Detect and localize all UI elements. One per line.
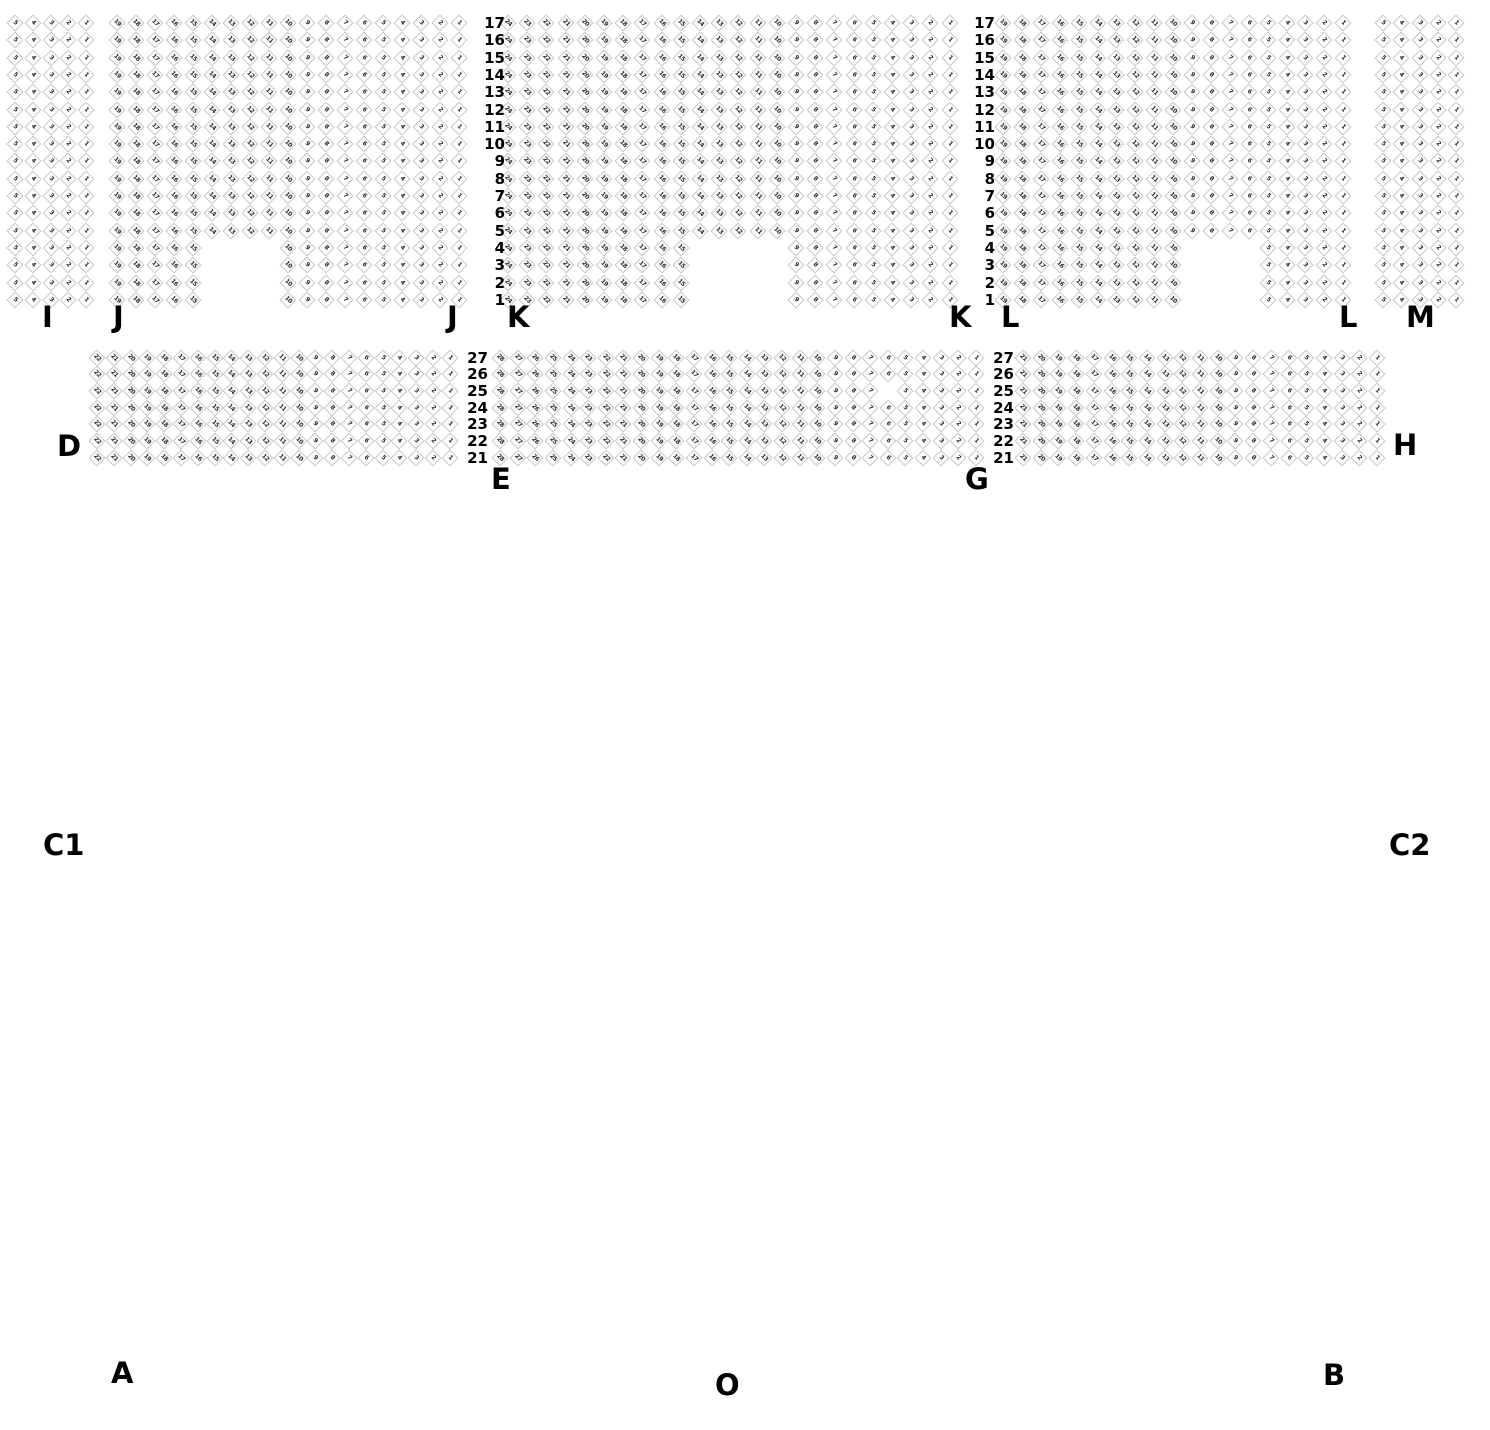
seat[interactable]: 19 bbox=[650, 366, 667, 383]
seat[interactable]: 2 bbox=[432, 136, 449, 153]
seat[interactable]: 19 bbox=[596, 49, 613, 66]
seat[interactable]: 1 bbox=[941, 136, 958, 153]
seat[interactable]: 14 bbox=[1089, 205, 1106, 222]
seat[interactable]: 14 bbox=[1089, 32, 1106, 49]
seat[interactable]: 7 bbox=[337, 222, 354, 239]
seat[interactable]: 10 bbox=[280, 49, 297, 66]
seat[interactable]: 7 bbox=[341, 433, 358, 450]
seat[interactable]: 2 bbox=[1429, 101, 1446, 118]
seat[interactable]: 18 bbox=[1013, 257, 1030, 274]
seat[interactable]: 15 bbox=[721, 449, 738, 466]
seat[interactable]: 20 bbox=[576, 257, 593, 274]
seat[interactable]: 17 bbox=[1085, 416, 1102, 433]
seat[interactable]: 17 bbox=[1032, 84, 1049, 101]
seat[interactable]: 20 bbox=[576, 153, 593, 170]
seat[interactable]: 11 bbox=[749, 15, 766, 32]
seat[interactable]: 17 bbox=[634, 118, 651, 135]
seat[interactable]: 16 bbox=[1051, 32, 1068, 49]
seat[interactable]: 5 bbox=[1375, 239, 1392, 256]
seat[interactable]: 1 bbox=[451, 49, 468, 66]
seat[interactable]: 19 bbox=[1050, 449, 1067, 466]
seat[interactable]: 7 bbox=[1221, 84, 1238, 101]
seat[interactable]: 2 bbox=[60, 257, 77, 274]
seat[interactable]: 20 bbox=[576, 84, 593, 101]
seat[interactable]: 7 bbox=[337, 153, 354, 170]
seat[interactable]: 2 bbox=[1316, 257, 1333, 274]
seat[interactable]: 2 bbox=[922, 257, 939, 274]
seat[interactable]: 3 bbox=[903, 239, 920, 256]
seat[interactable]: 22 bbox=[538, 32, 555, 49]
seat[interactable]: 16 bbox=[166, 49, 183, 66]
seat[interactable]: 19 bbox=[995, 188, 1012, 205]
seat[interactable]: 8 bbox=[1202, 84, 1219, 101]
seat[interactable]: 19 bbox=[109, 15, 126, 32]
seat[interactable]: 8 bbox=[318, 32, 335, 49]
seat[interactable]: 4 bbox=[24, 32, 41, 49]
seat[interactable]: 19 bbox=[596, 170, 613, 187]
seat[interactable]: 12 bbox=[1174, 382, 1191, 399]
seat[interactable]: 10 bbox=[280, 153, 297, 170]
seat[interactable]: 16 bbox=[166, 257, 183, 274]
seat[interactable]: 19 bbox=[596, 205, 613, 222]
seat[interactable]: 12 bbox=[1127, 118, 1144, 135]
seat[interactable]: 14 bbox=[1089, 239, 1106, 256]
seat[interactable]: 9 bbox=[1184, 101, 1201, 118]
seat[interactable]: 18 bbox=[1068, 349, 1085, 366]
seat[interactable]: 23 bbox=[580, 349, 597, 366]
seat[interactable]: 2 bbox=[1429, 84, 1446, 101]
seat[interactable]: 15 bbox=[185, 66, 202, 83]
seat[interactable]: 9 bbox=[299, 188, 316, 205]
seat[interactable]: 11 bbox=[1146, 222, 1163, 239]
seat[interactable]: 1 bbox=[941, 257, 958, 274]
seat[interactable]: 27 bbox=[509, 433, 526, 450]
seat[interactable]: 14 bbox=[692, 32, 709, 49]
seat[interactable]: 13 bbox=[1156, 382, 1173, 399]
seat[interactable]: 6 bbox=[1280, 416, 1297, 433]
seat[interactable]: 6 bbox=[845, 222, 862, 239]
seat[interactable]: 6 bbox=[1280, 449, 1297, 466]
seat[interactable]: 1 bbox=[1448, 291, 1465, 308]
seat[interactable]: 11 bbox=[1146, 49, 1163, 66]
seat[interactable]: 28 bbox=[492, 399, 509, 416]
seat[interactable]: 4 bbox=[1393, 153, 1410, 170]
seat[interactable]: 8 bbox=[807, 205, 824, 222]
seat[interactable]: 6 bbox=[845, 136, 862, 153]
seat[interactable]: 11 bbox=[1192, 449, 1209, 466]
seat[interactable]: 4 bbox=[394, 239, 411, 256]
seat[interactable]: 13 bbox=[756, 382, 773, 399]
seat[interactable]: 4 bbox=[884, 84, 901, 101]
seat[interactable]: 23 bbox=[519, 15, 536, 32]
seat[interactable]: 23 bbox=[580, 366, 597, 383]
seat[interactable]: 14 bbox=[738, 416, 755, 433]
seat[interactable]: 17 bbox=[173, 416, 190, 433]
seat[interactable]: 18 bbox=[615, 136, 632, 153]
seat[interactable]: 7 bbox=[337, 239, 354, 256]
seat[interactable]: 15 bbox=[185, 188, 202, 205]
seat[interactable]: 7 bbox=[826, 15, 843, 32]
seat[interactable]: 17 bbox=[1085, 382, 1102, 399]
seat[interactable]: 4 bbox=[1278, 32, 1295, 49]
seat[interactable]: 10 bbox=[280, 84, 297, 101]
seat[interactable]: 3 bbox=[1411, 49, 1428, 66]
seat[interactable]: 2 bbox=[1429, 32, 1446, 49]
seat[interactable]: 13 bbox=[756, 399, 773, 416]
seat[interactable]: 19 bbox=[596, 274, 613, 291]
seat[interactable]: 4 bbox=[915, 433, 932, 450]
seat[interactable]: 21 bbox=[105, 349, 122, 366]
seat[interactable]: 13 bbox=[1156, 399, 1173, 416]
seat[interactable]: 8 bbox=[1245, 416, 1262, 433]
seat[interactable]: 4 bbox=[24, 136, 41, 153]
seat[interactable]: 9 bbox=[307, 399, 324, 416]
seat[interactable]: 23 bbox=[519, 136, 536, 153]
seat[interactable]: 9 bbox=[1184, 32, 1201, 49]
seat[interactable]: 22 bbox=[89, 382, 106, 399]
seat[interactable]: 14 bbox=[204, 222, 221, 239]
seat[interactable]: 12 bbox=[242, 188, 259, 205]
seat[interactable]: 10 bbox=[1165, 49, 1182, 66]
seat[interactable]: 2 bbox=[1429, 49, 1446, 66]
seat[interactable]: 7 bbox=[1262, 433, 1279, 450]
seat[interactable]: 18 bbox=[1013, 274, 1030, 291]
seat[interactable]: 15 bbox=[185, 257, 202, 274]
seat[interactable]: 15 bbox=[1070, 101, 1087, 118]
seat[interactable]: 4 bbox=[1278, 101, 1295, 118]
seat[interactable]: 5 bbox=[864, 170, 881, 187]
seat[interactable]: 6 bbox=[1280, 366, 1297, 383]
seat[interactable]: 11 bbox=[1146, 101, 1163, 118]
seat[interactable]: 20 bbox=[576, 222, 593, 239]
seat[interactable]: 9 bbox=[788, 291, 805, 308]
seat[interactable]: 10 bbox=[809, 366, 826, 383]
seat[interactable]: 12 bbox=[257, 399, 274, 416]
seat[interactable]: 16 bbox=[703, 449, 720, 466]
seat[interactable]: 15 bbox=[721, 366, 738, 383]
seat[interactable]: 12 bbox=[1174, 449, 1191, 466]
seat[interactable]: 21 bbox=[557, 101, 574, 118]
seat[interactable]: 17 bbox=[685, 382, 702, 399]
seat[interactable]: 4 bbox=[24, 274, 41, 291]
seat[interactable]: 11 bbox=[749, 84, 766, 101]
seat[interactable]: 1 bbox=[941, 239, 958, 256]
seat[interactable]: 7 bbox=[337, 84, 354, 101]
seat[interactable]: 19 bbox=[109, 170, 126, 187]
seat[interactable]: 1 bbox=[941, 118, 958, 135]
seat[interactable]: 5 bbox=[1298, 382, 1315, 399]
seat[interactable]: 21 bbox=[1015, 449, 1032, 466]
seat[interactable]: 15 bbox=[1121, 416, 1138, 433]
seat[interactable]: 25 bbox=[544, 433, 561, 450]
seat[interactable]: 11 bbox=[1192, 349, 1209, 366]
seat[interactable]: 4 bbox=[24, 118, 41, 135]
seat[interactable]: 5 bbox=[7, 84, 24, 101]
seat[interactable]: 6 bbox=[1240, 205, 1257, 222]
seat[interactable]: 2 bbox=[60, 101, 77, 118]
seat[interactable]: 18 bbox=[1013, 49, 1030, 66]
seat[interactable]: 3 bbox=[932, 449, 949, 466]
seat[interactable]: 18 bbox=[668, 449, 685, 466]
seat[interactable]: 4 bbox=[24, 239, 41, 256]
seat[interactable]: 6 bbox=[1280, 433, 1297, 450]
seat[interactable]: 17 bbox=[147, 205, 164, 222]
seat[interactable]: 18 bbox=[128, 153, 145, 170]
seat[interactable]: 9 bbox=[826, 449, 843, 466]
seat[interactable]: 16 bbox=[703, 382, 720, 399]
seat[interactable]: 13 bbox=[240, 449, 257, 466]
seat[interactable]: 5 bbox=[1259, 153, 1276, 170]
seat[interactable]: 10 bbox=[768, 49, 785, 66]
seat[interactable]: 1 bbox=[1448, 101, 1465, 118]
seat[interactable]: 2 bbox=[922, 15, 939, 32]
seat[interactable]: 14 bbox=[204, 32, 221, 49]
seat[interactable]: 3 bbox=[1333, 382, 1350, 399]
seat[interactable]: 27 bbox=[509, 449, 526, 466]
seat[interactable]: 20 bbox=[633, 449, 650, 466]
seat[interactable]: 1 bbox=[78, 118, 95, 135]
seat[interactable]: 17 bbox=[1032, 66, 1049, 83]
seat[interactable]: 22 bbox=[89, 349, 106, 366]
seat[interactable]: 14 bbox=[1138, 449, 1155, 466]
seat[interactable]: 14 bbox=[1089, 257, 1106, 274]
seat[interactable]: 8 bbox=[1202, 49, 1219, 66]
seat[interactable]: 1 bbox=[451, 15, 468, 32]
seat[interactable]: 7 bbox=[1221, 66, 1238, 83]
seat[interactable]: 13 bbox=[1156, 349, 1173, 366]
seat[interactable]: 12 bbox=[242, 84, 259, 101]
seat[interactable]: 8 bbox=[1245, 366, 1262, 383]
seat[interactable]: 15 bbox=[672, 188, 689, 205]
seat[interactable]: 12 bbox=[1127, 205, 1144, 222]
seat[interactable]: 5 bbox=[1375, 118, 1392, 135]
seat[interactable]: 11 bbox=[261, 15, 278, 32]
seat[interactable]: 10 bbox=[290, 366, 307, 383]
seat[interactable]: 19 bbox=[109, 118, 126, 135]
seat[interactable]: 2 bbox=[425, 449, 442, 466]
seat[interactable]: 18 bbox=[615, 257, 632, 274]
seat[interactable]: 19 bbox=[995, 101, 1012, 118]
seat[interactable]: 3 bbox=[42, 49, 59, 66]
seat[interactable]: 4 bbox=[1315, 449, 1332, 466]
seat[interactable]: 23 bbox=[580, 416, 597, 433]
seat[interactable]: 7 bbox=[337, 15, 354, 32]
seat[interactable]: 12 bbox=[730, 66, 747, 83]
seat[interactable]: 2 bbox=[1351, 416, 1368, 433]
seat[interactable]: 27 bbox=[509, 382, 526, 399]
seat[interactable]: 2 bbox=[1351, 349, 1368, 366]
seat[interactable]: 26 bbox=[527, 416, 544, 433]
seat[interactable]: 19 bbox=[995, 136, 1012, 153]
seat[interactable]: 8 bbox=[318, 49, 335, 66]
seat[interactable]: 3 bbox=[903, 274, 920, 291]
seat[interactable]: 4 bbox=[1393, 32, 1410, 49]
seat[interactable]: 3 bbox=[1333, 433, 1350, 450]
seat[interactable]: 16 bbox=[1051, 49, 1068, 66]
seat[interactable]: 6 bbox=[356, 136, 373, 153]
seat[interactable]: 8 bbox=[1202, 222, 1219, 239]
seat[interactable]: 15 bbox=[1070, 170, 1087, 187]
seat[interactable]: 16 bbox=[653, 32, 670, 49]
seat[interactable]: 16 bbox=[166, 239, 183, 256]
seat[interactable]: 6 bbox=[1240, 66, 1257, 83]
seat[interactable]: 10 bbox=[280, 118, 297, 135]
seat[interactable]: 19 bbox=[650, 433, 667, 450]
seat[interactable]: 6 bbox=[845, 291, 862, 308]
seat[interactable]: 7 bbox=[1262, 449, 1279, 466]
seat[interactable]: 4 bbox=[884, 136, 901, 153]
seat[interactable]: 12 bbox=[730, 170, 747, 187]
seat[interactable]: 3 bbox=[932, 366, 949, 383]
seat[interactable]: 12 bbox=[1127, 188, 1144, 205]
seat[interactable]: 3 bbox=[932, 399, 949, 416]
seat[interactable]: 10 bbox=[768, 205, 785, 222]
seat[interactable]: 13 bbox=[711, 15, 728, 32]
seat[interactable]: 2 bbox=[1316, 205, 1333, 222]
seat[interactable]: 22 bbox=[597, 449, 614, 466]
seat[interactable]: 4 bbox=[24, 222, 41, 239]
seat[interactable]: 4 bbox=[884, 15, 901, 32]
seat[interactable]: 3 bbox=[413, 32, 430, 49]
seat[interactable]: 10 bbox=[768, 15, 785, 32]
seat[interactable]: 13 bbox=[1108, 188, 1125, 205]
seat[interactable]: 1 bbox=[941, 49, 958, 66]
seat[interactable]: 15 bbox=[1121, 399, 1138, 416]
seat[interactable]: 22 bbox=[538, 291, 555, 308]
seat[interactable]: 1 bbox=[941, 101, 958, 118]
seat[interactable]: 10 bbox=[280, 222, 297, 239]
seat[interactable]: 15 bbox=[672, 257, 689, 274]
seat[interactable]: 9 bbox=[788, 15, 805, 32]
seat[interactable]: 5 bbox=[375, 15, 392, 32]
seat[interactable]: 13 bbox=[756, 366, 773, 383]
seat[interactable]: 18 bbox=[1068, 382, 1085, 399]
seat[interactable]: 14 bbox=[1138, 382, 1155, 399]
seat[interactable]: 2 bbox=[950, 399, 967, 416]
seat[interactable]: 10 bbox=[280, 136, 297, 153]
seat[interactable]: 9 bbox=[1184, 136, 1201, 153]
seat[interactable]: 8 bbox=[844, 382, 861, 399]
seat[interactable]: 14 bbox=[738, 433, 755, 450]
seat[interactable]: 10 bbox=[768, 136, 785, 153]
seat[interactable]: 9 bbox=[1227, 416, 1244, 433]
seat[interactable]: 16 bbox=[189, 433, 206, 450]
seat[interactable]: 9 bbox=[307, 349, 324, 366]
seat[interactable]: 1 bbox=[1369, 366, 1386, 383]
seat[interactable]: 10 bbox=[809, 382, 826, 399]
seat[interactable]: 11 bbox=[261, 205, 278, 222]
seat[interactable]: 23 bbox=[580, 399, 597, 416]
seat[interactable]: 21 bbox=[105, 399, 122, 416]
seat[interactable]: 5 bbox=[1375, 32, 1392, 49]
seat[interactable]: 13 bbox=[756, 416, 773, 433]
seat[interactable]: 2 bbox=[1316, 136, 1333, 153]
seat[interactable]: 9 bbox=[788, 257, 805, 274]
seat[interactable]: 8 bbox=[324, 382, 341, 399]
seat[interactable]: 17 bbox=[685, 399, 702, 416]
seat[interactable]: 22 bbox=[89, 433, 106, 450]
seat[interactable]: 2 bbox=[60, 66, 77, 83]
seat[interactable]: 6 bbox=[1240, 170, 1257, 187]
seat[interactable]: 19 bbox=[1050, 349, 1067, 366]
seat[interactable]: 6 bbox=[845, 239, 862, 256]
seat[interactable]: 12 bbox=[730, 15, 747, 32]
seat[interactable]: 4 bbox=[884, 205, 901, 222]
seat[interactable]: 5 bbox=[864, 32, 881, 49]
seat[interactable]: 17 bbox=[634, 170, 651, 187]
seat[interactable]: 3 bbox=[903, 205, 920, 222]
seat[interactable]: 11 bbox=[1146, 84, 1163, 101]
seat[interactable]: 7 bbox=[337, 136, 354, 153]
seat[interactable]: 13 bbox=[711, 118, 728, 135]
seat[interactable]: 10 bbox=[809, 449, 826, 466]
seat[interactable]: 4 bbox=[884, 274, 901, 291]
seat[interactable]: 8 bbox=[1245, 449, 1262, 466]
seat[interactable]: 13 bbox=[711, 66, 728, 83]
seat[interactable]: 14 bbox=[204, 101, 221, 118]
seat[interactable]: 22 bbox=[89, 449, 106, 466]
seat[interactable]: 16 bbox=[1051, 153, 1068, 170]
seat[interactable]: 2 bbox=[432, 291, 449, 308]
seat[interactable]: 18 bbox=[1013, 32, 1030, 49]
seat[interactable]: 15 bbox=[672, 66, 689, 83]
seat[interactable]: 22 bbox=[538, 205, 555, 222]
seat[interactable]: 12 bbox=[774, 449, 791, 466]
seat[interactable]: 11 bbox=[749, 188, 766, 205]
seat[interactable]: 17 bbox=[147, 188, 164, 205]
seat[interactable]: 9 bbox=[1184, 153, 1201, 170]
seat[interactable]: 2 bbox=[1429, 118, 1446, 135]
seat[interactable]: 5 bbox=[7, 205, 24, 222]
seat[interactable]: 4 bbox=[884, 257, 901, 274]
seat[interactable]: 24 bbox=[562, 399, 579, 416]
seat[interactable]: 5 bbox=[375, 205, 392, 222]
seat[interactable]: 13 bbox=[711, 32, 728, 49]
seat[interactable]: 5 bbox=[1259, 274, 1276, 291]
seat[interactable]: 18 bbox=[615, 188, 632, 205]
seat[interactable]: 10 bbox=[1209, 433, 1226, 450]
seat[interactable]: 19 bbox=[596, 101, 613, 118]
seat[interactable]: 1 bbox=[1335, 239, 1352, 256]
seat[interactable]: 14 bbox=[204, 170, 221, 187]
seat[interactable]: 17 bbox=[1032, 188, 1049, 205]
seat[interactable]: 3 bbox=[413, 188, 430, 205]
seat[interactable]: 5 bbox=[1259, 15, 1276, 32]
seat[interactable]: 19 bbox=[109, 274, 126, 291]
seat[interactable]: 5 bbox=[1375, 15, 1392, 32]
seat[interactable]: 19 bbox=[650, 449, 667, 466]
seat[interactable]: 16 bbox=[703, 416, 720, 433]
seat[interactable]: 14 bbox=[223, 433, 240, 450]
seat[interactable]: 5 bbox=[1298, 449, 1315, 466]
seat[interactable]: 14 bbox=[1089, 170, 1106, 187]
seat[interactable]: 8 bbox=[318, 222, 335, 239]
seat[interactable]: 13 bbox=[223, 153, 240, 170]
seat[interactable]: 18 bbox=[615, 66, 632, 83]
seat[interactable]: 1 bbox=[451, 257, 468, 274]
seat[interactable]: 6 bbox=[1280, 399, 1297, 416]
seat[interactable]: 9 bbox=[788, 136, 805, 153]
seat[interactable]: 6 bbox=[356, 49, 373, 66]
seat[interactable]: 13 bbox=[711, 84, 728, 101]
seat[interactable]: 3 bbox=[413, 274, 430, 291]
seat[interactable]: 4 bbox=[394, 274, 411, 291]
seat[interactable]: 2 bbox=[1351, 366, 1368, 383]
seat[interactable]: 15 bbox=[206, 349, 223, 366]
seat[interactable]: 7 bbox=[862, 416, 879, 433]
seat[interactable]: 15 bbox=[672, 118, 689, 135]
seat[interactable]: 5 bbox=[7, 32, 24, 49]
